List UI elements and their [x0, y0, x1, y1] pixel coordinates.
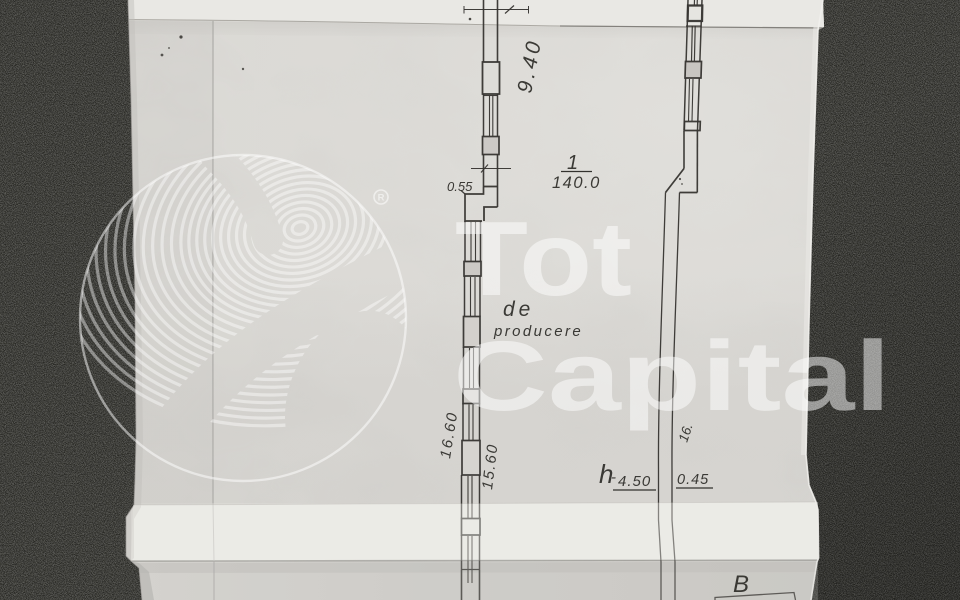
svg-text:Tot: Tot — [455, 199, 632, 317]
svg-text:4.50: 4.50 — [618, 473, 651, 490]
svg-text:Capital: Capital — [453, 321, 891, 432]
svg-text:R: R — [378, 193, 385, 204]
svg-text:B: B — [733, 571, 749, 598]
svg-text:0.45: 0.45 — [677, 472, 709, 488]
svg-text:0.55: 0.55 — [447, 179, 473, 194]
svg-text:140.0: 140.0 — [552, 174, 601, 192]
svg-text:1: 1 — [567, 152, 578, 174]
svg-text:-: - — [611, 469, 616, 486]
